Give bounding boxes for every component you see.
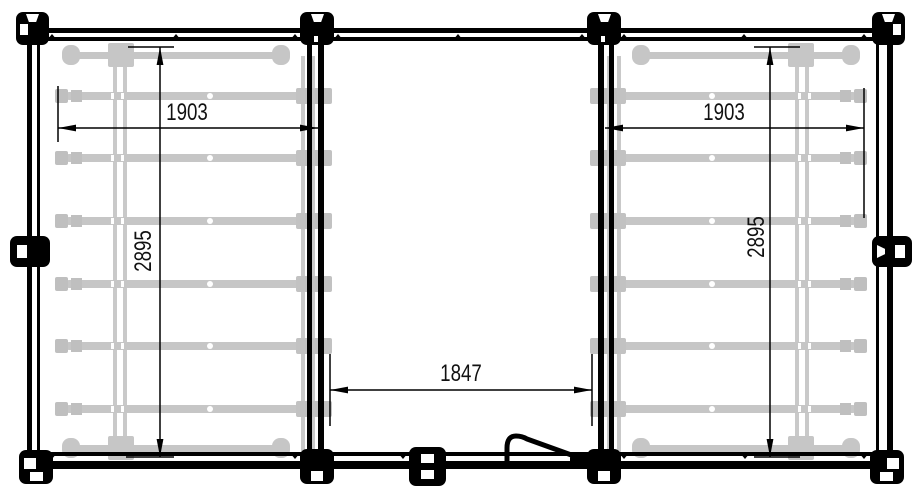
dimension-label-right-bay-width: 1903 bbox=[685, 101, 763, 125]
dimension-label-center-opening: 1847 bbox=[422, 362, 500, 386]
dimension-label-left-bay-width: 1903 bbox=[148, 101, 226, 125]
dimension-label-left-bay-depth: 2895 bbox=[132, 212, 156, 290]
tilt-handle bbox=[507, 436, 596, 463]
dimension-label-right-bay-depth: 2895 bbox=[745, 198, 769, 276]
cad-drawing: 1903 1903 2895 2895 1847 bbox=[0, 0, 922, 500]
